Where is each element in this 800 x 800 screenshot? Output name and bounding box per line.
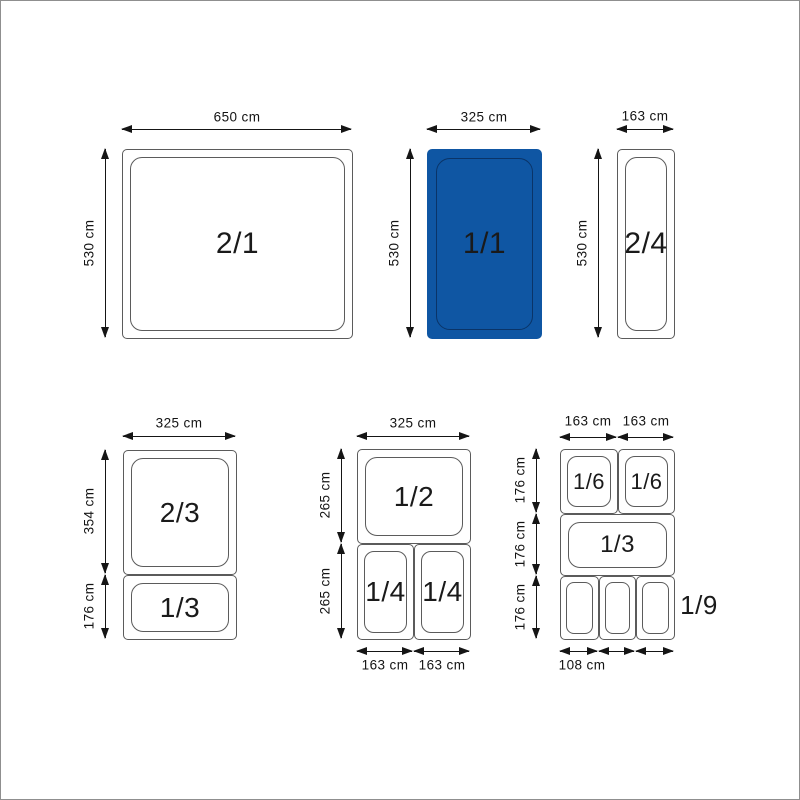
pan-gn13-right-label: 1/3: [561, 515, 674, 575]
pan-gn24: 2/4: [617, 149, 675, 339]
gn14-row-height-arrow-icon: [341, 544, 342, 638]
gn11-height-dim: 530 cm: [387, 220, 401, 267]
pan-gn14-right-label: 1/4: [415, 545, 470, 639]
gn11-height-arrow-icon: [410, 149, 411, 337]
gn19-a-width-arrow-icon: [560, 651, 597, 652]
gn11-width-arrow-icon: [427, 129, 540, 130]
gn21-height-arrow-icon: [105, 149, 106, 337]
gn16-left-width-dim: 163 cm: [565, 414, 612, 428]
gn16-right-width-arrow-icon: [618, 437, 673, 438]
pan-gn19-c-inner: [642, 582, 669, 634]
pan-gn19-b: [599, 576, 636, 640]
gn14-left-width-dim: 163 cm: [362, 658, 409, 672]
gn16-left-width-arrow-icon: [560, 437, 616, 438]
pan-gn16-right-label: 1/6: [619, 450, 674, 513]
right-row1-height-dim: 176 cm: [513, 457, 527, 504]
gn14-right-width-dim: 163 cm: [419, 658, 466, 672]
gn14-left-width-arrow-icon: [357, 651, 412, 652]
left-group-width-dim: 325 cm: [156, 416, 203, 430]
left-group-width-arrow-icon: [123, 436, 235, 437]
pan-gn16-left: 1/6: [560, 449, 618, 514]
gn24-width-arrow-icon: [617, 129, 673, 130]
pan-gn12: 1/2: [357, 449, 471, 544]
gn12-height-dim: 265 cm: [318, 472, 332, 519]
pan-gn12-label: 1/2: [358, 450, 470, 543]
pan-gn19-a-inner: [566, 582, 593, 634]
gn19-b-width-arrow-icon: [599, 651, 634, 652]
pan-gn11-highlighted: 1/1: [427, 149, 542, 339]
right-row2-height-dim: 176 cm: [513, 521, 527, 568]
pan-gn11-label: 1/1: [428, 150, 541, 338]
pan-gn19-a: [560, 576, 599, 640]
gastronorm-sizes-diagram: 650 cm 530 cm 2/1 325 cm 530 cm 1/1 163 …: [0, 0, 800, 800]
gn14-right-width-arrow-icon: [414, 651, 469, 652]
pan-gn23-label: 2/3: [124, 451, 236, 574]
gn13-left-height-dim: 176 cm: [82, 583, 96, 630]
gn19-c-width-arrow-icon: [636, 651, 673, 652]
middle-group-width-dim: 325 cm: [390, 416, 437, 430]
pan-gn23: 2/3: [123, 450, 237, 575]
gn24-width-dim: 163 cm: [622, 109, 669, 123]
pan-gn13-right: 1/3: [560, 514, 675, 576]
gn11-width-dim: 325 cm: [461, 110, 508, 124]
right-row1-height-arrow-icon: [536, 449, 537, 512]
gn13-left-height-arrow-icon: [105, 575, 106, 638]
pan-gn13-left-label: 1/3: [124, 576, 236, 639]
gn24-height-dim: 530 cm: [575, 220, 589, 267]
gn16-right-width-dim: 163 cm: [623, 414, 670, 428]
pan-gn21-label: 2/1: [123, 150, 352, 338]
gn21-height-dim: 530 cm: [82, 220, 96, 267]
gn24-height-arrow-icon: [598, 149, 599, 337]
pan-gn19-b-inner: [605, 582, 630, 634]
right-row3-height-arrow-icon: [536, 576, 537, 638]
pan-gn16-right: 1/6: [618, 449, 675, 514]
gn19-label: 1/9: [680, 592, 718, 618]
pan-gn16-left-label: 1/6: [561, 450, 617, 513]
pan-gn21: 2/1: [122, 149, 353, 339]
right-row2-height-arrow-icon: [536, 514, 537, 574]
gn14-row-height-dim: 265 cm: [318, 568, 332, 615]
gn12-height-arrow-icon: [341, 449, 342, 542]
pan-gn14-left: 1/4: [357, 544, 414, 640]
gn19-width-dim: 108 cm: [559, 658, 606, 672]
pan-gn14-left-label: 1/4: [358, 545, 413, 639]
gn23-height-arrow-icon: [105, 450, 106, 573]
right-row3-height-dim: 176 cm: [513, 584, 527, 631]
pan-gn24-label: 2/4: [618, 150, 674, 338]
gn21-width-dim: 650 cm: [214, 110, 261, 124]
pan-gn14-right: 1/4: [414, 544, 471, 640]
pan-gn13-left: 1/3: [123, 575, 237, 640]
gn23-height-dim: 354 cm: [82, 488, 96, 535]
pan-gn19-c: [636, 576, 675, 640]
middle-group-width-arrow-icon: [357, 436, 469, 437]
gn21-width-arrow-icon: [122, 129, 351, 130]
